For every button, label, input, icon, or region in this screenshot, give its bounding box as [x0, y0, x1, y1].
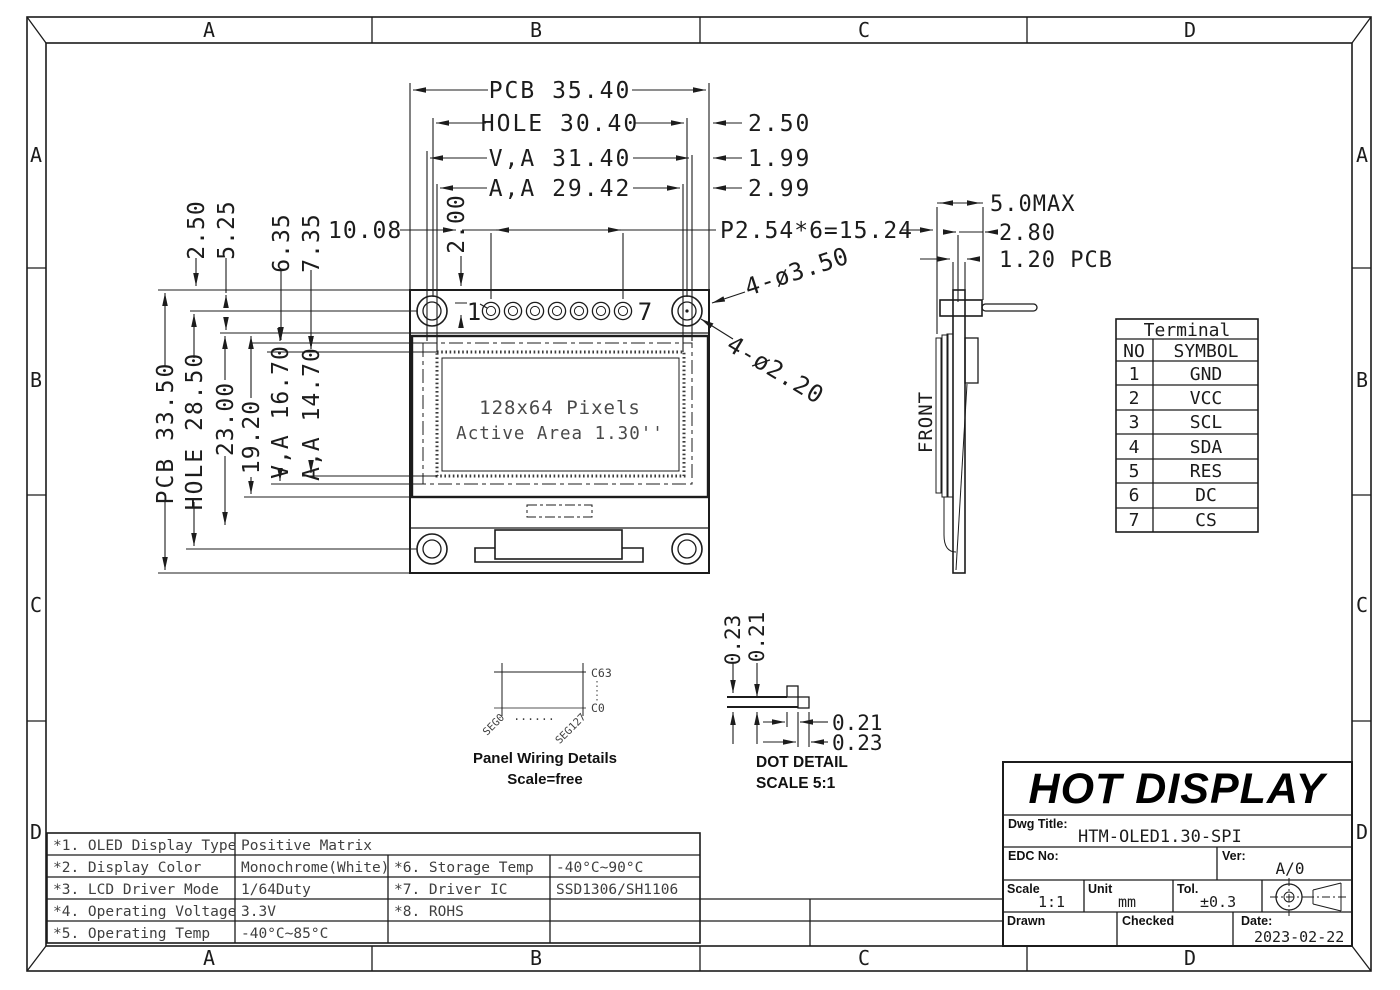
display-size-label: 128x64 Pixels [479, 397, 641, 419]
dot-detail: 0.23 0.21 0.21 0.23 DOT DETAIL SCALE 5:1 [721, 612, 883, 792]
spec-row: *2. Display Color Monochrome(White) *6. … [53, 860, 643, 876]
ver-value: A/0 [1276, 859, 1305, 878]
spec-key: *8. ROHS [394, 904, 464, 920]
pin-header-pads [482, 302, 631, 319]
spec-value: Positive Matrix [241, 838, 372, 854]
dimensions-top: PCB 35.40 HOLE 30.40 V,A 31.40 A,A 29.42… [328, 78, 933, 352]
dim-aa-width: A,A 29.42 [489, 176, 632, 202]
front-label: FRONT [915, 391, 937, 453]
terminal-pin-symbol: SCL [1190, 412, 1223, 433]
drawing-sheet: A B C D A B C D A B C D A B C D 128x64 P… [0, 0, 1400, 990]
engineering-drawing: A B C D A B C D A B C D A B C D 128x64 P… [0, 0, 1400, 990]
dim-pin-top: 2.00 [444, 194, 470, 253]
zone-right-b: B [1356, 368, 1368, 392]
unit-value: mm [1118, 893, 1136, 911]
ver-label: Ver: [1222, 849, 1246, 863]
dim-pin-pitch: P2.54*6=15.24 [720, 218, 913, 244]
dim-thickness-pcb: 1.20 PCB [999, 248, 1113, 273]
spec-key: *3. LCD Driver Mode [53, 882, 219, 898]
dim-aa-top: 7.35 [299, 213, 325, 272]
terminal-pin-symbol: SDA [1190, 437, 1223, 458]
panel-wiring-title: Panel Wiring Details [473, 750, 617, 767]
dot-dim-h-outer: 0.23 [832, 731, 883, 755]
dim-hole-width: HOLE 30.40 [481, 111, 639, 137]
terminal-table: Terminal NO SYMBOL 1 GND 2 VCC 3 SCL 4 S… [1116, 319, 1258, 532]
terminal-title: Terminal [1144, 320, 1231, 341]
dim-offset-aa: 2.99 [748, 176, 811, 202]
dot-dim-v-inner: 0.21 [745, 612, 769, 663]
dim-top-off: 2.50 [184, 200, 210, 259]
wiring-c0-label: C0 [591, 701, 605, 715]
dim-pin-left: 10.08 [328, 218, 402, 244]
terminal-pin-no: 4 [1129, 437, 1140, 458]
dim-pcb-width: PCB 35.40 [489, 78, 632, 104]
zone-bottom-b: B [530, 946, 542, 970]
dim-offset-hole: 2.50 [748, 111, 811, 137]
tol-label: Tol. [1177, 882, 1198, 896]
zone-right-c: C [1356, 593, 1368, 617]
terminal-pin-symbol: DC [1195, 485, 1217, 506]
terminal-pin-no: 2 [1129, 388, 1140, 409]
company-logo: HOT DISPLAY [1029, 765, 1328, 813]
zone-right-a: A [1356, 143, 1368, 167]
side-pin-header [940, 300, 982, 316]
spec-key: *5. Operating Temp [53, 926, 210, 942]
pin7-label: 7 [638, 298, 652, 326]
scale-label: Scale [1007, 882, 1040, 896]
side-view: FRONT [915, 290, 1037, 573]
spec-value: Monochrome(White) [241, 860, 389, 876]
spec-key: *7. Driver IC [394, 882, 508, 898]
dimensions-left-side: PCB 33.50 HOLE 28.50 23.00 19.20 V,A 16.… [153, 293, 437, 573]
dim-va-top: 6.35 [269, 213, 295, 272]
zone-top-b: B [530, 18, 542, 42]
drawn-label: Drawn [1007, 914, 1045, 928]
dim-glass-height: 23.00 [213, 382, 239, 456]
spec-value: -40°C~90°C [556, 860, 643, 876]
terminal-row: 6 DC [1129, 485, 1217, 506]
spec-value: SSD1306/SH1106 [556, 882, 678, 898]
terminal-col-symbol: SYMBOL [1173, 341, 1238, 362]
dwg-title-label: Dwg Title: [1008, 817, 1068, 831]
zone-left-a: A [30, 143, 42, 167]
terminal-pin-symbol: RES [1190, 461, 1223, 482]
side-pin [982, 304, 1037, 311]
spec-value: -40°C~85°C [241, 926, 328, 942]
zone-top-a: A [203, 18, 215, 42]
zone-top-d: D [1184, 18, 1196, 42]
dot-dim-v-outer: 0.23 [721, 615, 745, 666]
tol-value: ±0.3 [1200, 893, 1236, 911]
spec-key: *4. Operating Voltage [53, 904, 236, 920]
zone-top-c: C [858, 18, 870, 42]
spec-key: *2. Display Color [53, 860, 202, 876]
unit-label: Unit [1088, 882, 1113, 896]
zone-bottom-c: C [858, 946, 870, 970]
wiring-seg0-label: SEG0 [481, 712, 507, 738]
dot-detail-title: DOT DETAIL [756, 754, 848, 771]
terminal-row: 2 VCC [1129, 388, 1223, 409]
dim-pcb-height: PCB 33.50 [153, 362, 179, 505]
wiring-c63-label: C63 [591, 666, 612, 680]
terminal-row: 3 SCL [1129, 412, 1223, 433]
callout-pad-label: 4-ø3.50 [741, 242, 853, 302]
terminal-pin-no: 6 [1129, 485, 1140, 506]
terminal-pin-symbol: VCC [1190, 388, 1223, 409]
panel-wiring-detail: C63 C0 SEG0 ...... SEG127 Panel Wiring D… [473, 663, 617, 788]
terminal-pin-no: 7 [1129, 510, 1140, 531]
front-view: 128x64 Pixels Active Area 1.30'' 1 7 [410, 290, 709, 573]
active-area-label: Active Area 1.30'' [456, 424, 664, 444]
zone-right-d: D [1356, 820, 1368, 844]
spec-row: *4. Operating Voltage 3.3V *8. ROHS [53, 904, 464, 920]
checked-label: Checked [1122, 914, 1174, 928]
side-ic [965, 338, 978, 383]
callout-hole-label: 4-ø2.20 [722, 330, 829, 410]
terminal-row: 4 SDA [1129, 437, 1223, 458]
dim-offset-va: 1.99 [748, 146, 811, 172]
date-value: 2023-02-22 [1254, 928, 1344, 946]
terminal-row: 7 CS [1129, 510, 1217, 531]
zone-bottom-d: D [1184, 946, 1196, 970]
dim-va-height: V,A 16.70 [268, 345, 294, 479]
bottom-connector [475, 530, 643, 562]
pin1-label: 1 [467, 298, 481, 326]
dwg-title-value: HTM-OLED1.30-SPI [1078, 827, 1242, 847]
terminal-pin-no: 3 [1129, 412, 1140, 433]
terminal-pin-no: 1 [1129, 364, 1140, 385]
spec-row: *1. OLED Display Type Positive Matrix [53, 838, 372, 854]
spec-key: *1. OLED Display Type [53, 838, 236, 854]
terminal-row: 5 RES [1129, 461, 1223, 482]
terminal-row: 1 GND [1129, 364, 1223, 385]
zone-left-b: B [30, 368, 42, 392]
spec-value: 1/64Duty [241, 882, 311, 898]
terminal-col-no: NO [1123, 341, 1145, 362]
zone-left-d: D [30, 820, 42, 844]
terminal-pin-no: 5 [1129, 461, 1140, 482]
wiring-dots: ...... [513, 709, 555, 723]
spec-value: 3.3V [241, 904, 276, 920]
dimensions-side: 5.0MAX 2.80 1.20 PCB [920, 192, 1113, 334]
dot-detail-scale: SCALE 5:1 [756, 775, 836, 792]
panel-wiring-scale: Scale=free [507, 771, 582, 788]
date-label: Date: [1241, 914, 1272, 928]
spec-row: *3. LCD Driver Mode 1/64Duty *7. Driver … [53, 882, 678, 898]
terminal-pin-symbol: GND [1190, 364, 1223, 385]
zone-bottom-a: A [203, 946, 215, 970]
zone-left-c: C [30, 593, 42, 617]
hole-callouts: 4-ø3.50 4-ø2.20 [701, 242, 853, 410]
spec-row: *5. Operating Temp -40°C~85°C [53, 926, 328, 942]
scale-value: 1:1 [1038, 893, 1065, 911]
dim-hole-height: HOLE 28.50 [182, 352, 208, 510]
title-block: HOT DISPLAY Dwg Title: HTM-OLED1.30-SPI … [1003, 762, 1352, 946]
dim-hole-top: 5.25 [214, 200, 240, 259]
side-pcb [953, 290, 965, 573]
dim-thickness-module: 2.80 [999, 221, 1056, 246]
edc-no-label: EDC No: [1008, 849, 1059, 863]
dim-va-width: V,A 31.40 [489, 146, 632, 172]
dim-aa-height: A,A 14.70 [299, 347, 325, 481]
spec-table: *1. OLED Display Type Positive Matrix *2… [47, 833, 1003, 946]
spec-key: *6. Storage Temp [394, 860, 534, 876]
wiring-seg127-label: SEG127 [553, 711, 588, 746]
projection-symbol [1270, 878, 1348, 916]
dim-module-height: 19.20 [239, 400, 265, 474]
dim-thickness-max: 5.0MAX [990, 192, 1075, 217]
terminal-pin-symbol: CS [1195, 510, 1217, 531]
